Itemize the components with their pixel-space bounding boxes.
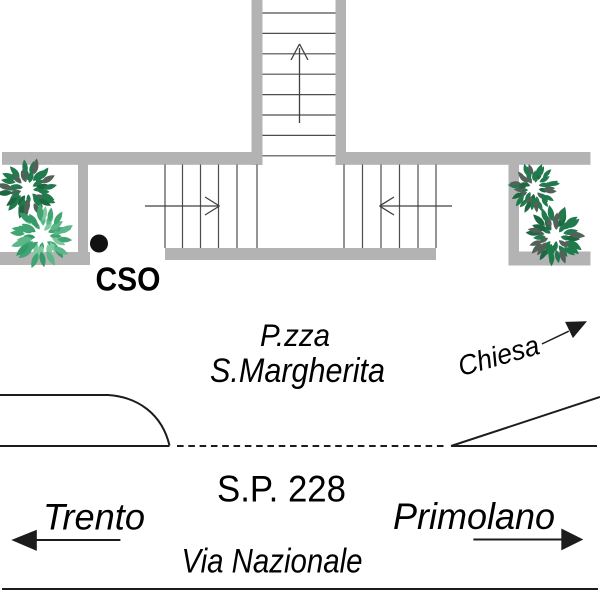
svg-text:Primolano: Primolano xyxy=(393,496,555,537)
svg-text:S.P. 228: S.P. 228 xyxy=(217,468,346,510)
svg-text:S.Margherita: S.Margherita xyxy=(210,352,385,390)
svg-text:CSO: CSO xyxy=(96,261,161,298)
svg-text:P.zza: P.zza xyxy=(260,317,330,353)
svg-text:Trento: Trento xyxy=(43,496,145,538)
svg-text:Via Nazionale: Via Nazionale xyxy=(182,543,363,581)
